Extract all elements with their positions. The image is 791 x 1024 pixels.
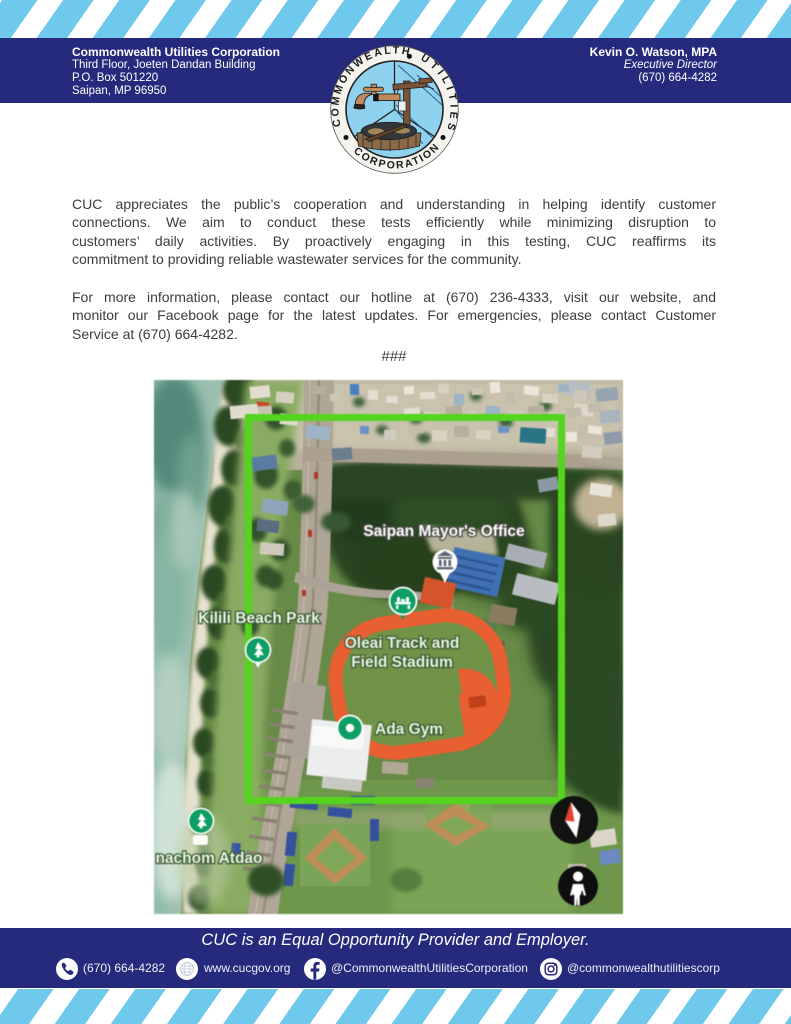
svg-text:Oleai Track and: Oleai Track and xyxy=(345,635,460,652)
svg-text:Kilili Beach Park: Kilili Beach Park xyxy=(198,610,320,627)
svg-text:nachom Atdao: nachom Atdao xyxy=(155,850,262,867)
svg-text:Field Stadium: Field Stadium xyxy=(351,654,453,671)
svg-text:Ada Gym: Ada Gym xyxy=(375,721,443,738)
svg-text:Saipan Mayor's Office: Saipan Mayor's Office xyxy=(363,523,525,540)
